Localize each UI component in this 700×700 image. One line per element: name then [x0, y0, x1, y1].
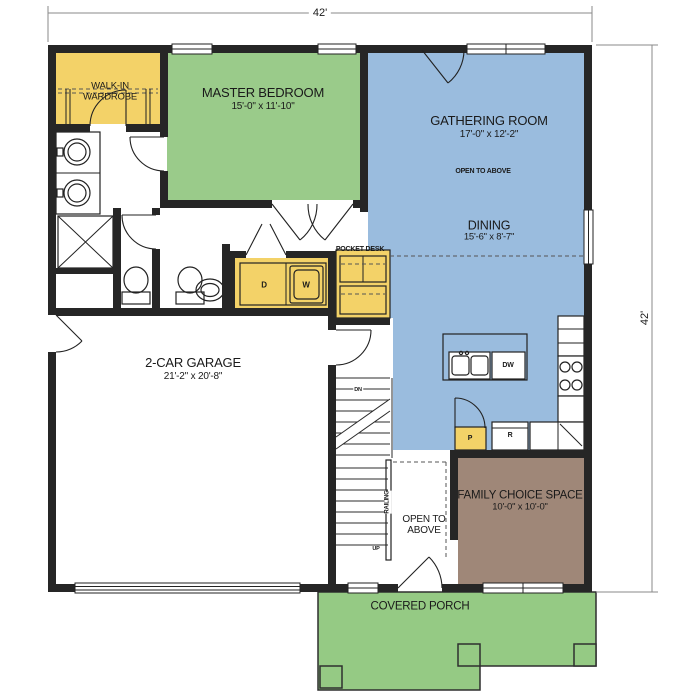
pocket-desk-label: POCKET DESK: [336, 246, 384, 254]
dimension-height: 42': [639, 307, 651, 329]
family-choice-label: FAMILY CHOICE SPACE 10'-0" x 10'-0": [457, 489, 582, 513]
garage-label: 2-CAR GARAGE 21'-2" x 20'-8": [145, 356, 241, 382]
garage-door: [75, 583, 300, 593]
master-bedroom-label: MASTER BEDROOM 15'-0" x 11'-10": [202, 86, 324, 112]
stairs-down-label: DN: [353, 387, 363, 393]
garage-side-door: [56, 315, 82, 352]
master-bedroom-area: [167, 53, 360, 200]
floor-plan-drawing: [0, 0, 700, 700]
porch-post: [574, 644, 596, 666]
porch-post: [458, 644, 480, 666]
staircase: [336, 378, 392, 560]
gathering-open-above-note: OPEN TO ABOVE: [455, 168, 510, 176]
porch-post: [320, 666, 342, 688]
toilet-room-door: [122, 215, 156, 249]
bedroom-double-doors: [272, 204, 353, 240]
garage-entry-door: [336, 330, 371, 365]
gathering-room-label: GATHERING ROOM 17'-0" x 12'-2": [430, 114, 548, 140]
bath-vanity: [56, 132, 100, 214]
washer-label: W: [302, 282, 309, 291]
dryer-label: D: [261, 282, 267, 291]
dishwasher-label: DW: [502, 362, 513, 370]
floor-plan: 42' 42' WALK-IN WARDROBE MASTER BEDROOM …: [0, 0, 700, 700]
covered-porch-label: COVERED PORCH: [371, 601, 470, 614]
pocket-desk-unit: [336, 250, 390, 318]
stairwell-open-above-label: OPEN TO ABOVE: [402, 514, 445, 536]
stairs-up-label: UP: [371, 546, 380, 552]
wardrobe-label: WALK-IN WARDROBE: [83, 81, 137, 102]
family-choice-area: [458, 458, 584, 584]
corner-counter: [530, 422, 584, 450]
bath-door: [130, 137, 164, 171]
cooktop: [558, 356, 584, 396]
dimension-width: 42': [309, 7, 331, 19]
shower: [58, 216, 113, 268]
laundry-area: [235, 258, 328, 309]
pantry-label: P: [468, 435, 472, 443]
dining-label: DINING 15'-6" x 8'-7": [464, 219, 514, 244]
rear-door: [398, 557, 442, 588]
refrigerator-label: R: [508, 432, 513, 440]
oven-stack: [558, 316, 584, 356]
railing-label: RAILING: [385, 490, 392, 513]
laundry-doors: [246, 224, 286, 255]
base-cabinet: [558, 396, 584, 422]
toilets: [122, 267, 224, 304]
